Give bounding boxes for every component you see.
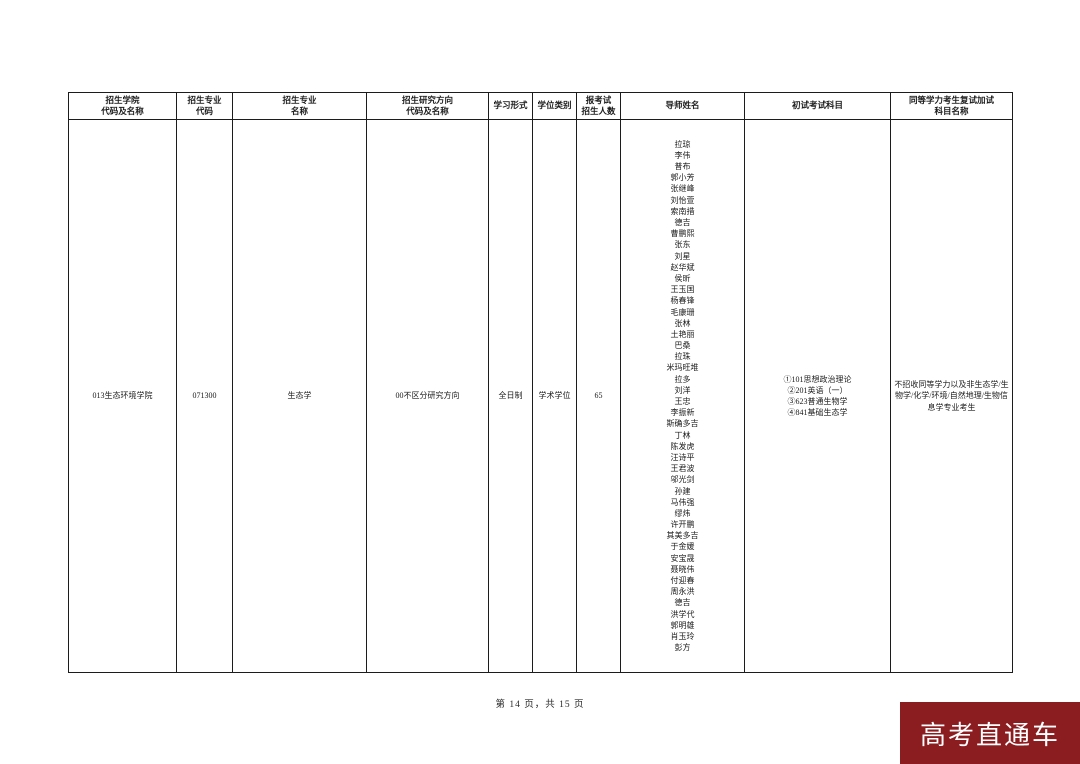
cell-major-code: 071300 xyxy=(177,120,233,673)
watermark-badge: 高考直通车 xyxy=(900,702,1080,764)
header-degree-type: 学位类别 xyxy=(533,93,577,120)
cell-degree-type: 学术学位 xyxy=(533,120,577,673)
cell-supervisors: 拉琼 李伟 普布 郭小芳 张继峰 刘怡萱 索南措 德吉 曹鹏熙 张东 刘星 赵华… xyxy=(621,120,745,673)
cell-exam-subjects: ①101思想政治理论 ②201英语（一） ③623普通生物学 ④841基础生态学 xyxy=(745,120,891,673)
cell-study-form: 全日制 xyxy=(489,120,533,673)
header-exam-subjects: 初试考试科目 xyxy=(745,93,891,120)
header-major-code: 招生专业 代码 xyxy=(177,93,233,120)
admissions-table: 招生学院 代码及名称 招生专业 代码 招生专业 名称 招生研究方向 代码及名称 … xyxy=(68,92,1013,673)
cell-major-name: 生态学 xyxy=(233,120,367,673)
header-enrollment-count: 报考试 招生人数 xyxy=(577,93,621,120)
cell-enrollment-count: 65 xyxy=(577,120,621,673)
header-college-code-name: 招生学院 代码及名称 xyxy=(69,93,177,120)
cell-research-direction: 00不区分研究方向 xyxy=(367,120,489,673)
cell-additional-subjects: 不招收同等学力以及非生态学/生物学/化学/环境/自然地理/生物信息学专业考生 xyxy=(891,120,1013,673)
header-research-direction: 招生研究方向 代码及名称 xyxy=(367,93,489,120)
table-row: 013生态环境学院 071300 生态学 00不区分研究方向 全日制 学术学位 … xyxy=(69,120,1013,673)
header-row: 招生学院 代码及名称 招生专业 代码 招生专业 名称 招生研究方向 代码及名称 … xyxy=(69,93,1013,120)
watermark-text: 高考直通车 xyxy=(920,715,1060,752)
document-page: 招生学院 代码及名称 招生专业 代码 招生专业 名称 招生研究方向 代码及名称 … xyxy=(0,0,1080,764)
header-additional-subjects: 同等学力考生复试加试 科目名称 xyxy=(891,93,1013,120)
cell-college: 013生态环境学院 xyxy=(69,120,177,673)
header-major-name: 招生专业 名称 xyxy=(233,93,367,120)
header-supervisor-names: 导师姓名 xyxy=(621,93,745,120)
header-study-form: 学习形式 xyxy=(489,93,533,120)
